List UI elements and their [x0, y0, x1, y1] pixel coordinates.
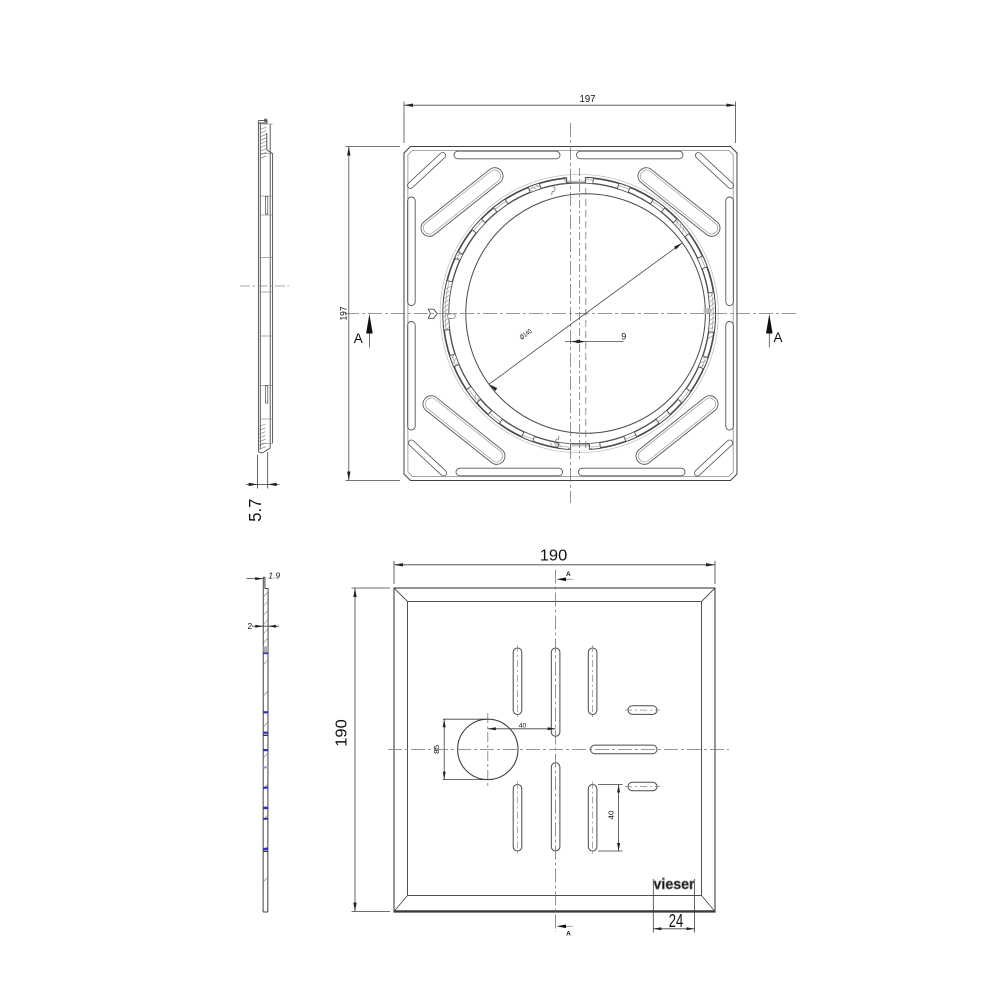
svg-text:A: A [773, 330, 782, 345]
svg-text:24: 24 [669, 910, 684, 931]
svg-text:A: A [566, 931, 571, 938]
svg-text:vieser: vieser [654, 876, 695, 893]
svg-text:40: 40 [606, 811, 615, 820]
svg-text:190: 190 [334, 719, 351, 747]
svg-text:40: 40 [519, 722, 527, 729]
svg-text:2: 2 [248, 621, 253, 631]
svg-text:A: A [354, 331, 363, 346]
svg-text:197: 197 [338, 307, 349, 321]
svg-text:A: A [566, 571, 571, 578]
svg-text:190: 190 [540, 547, 568, 564]
svg-text:197: 197 [580, 93, 596, 105]
svg-text:1.9: 1.9 [268, 570, 280, 580]
svg-text:9: 9 [621, 332, 626, 342]
svg-text:5.7: 5.7 [245, 499, 265, 522]
